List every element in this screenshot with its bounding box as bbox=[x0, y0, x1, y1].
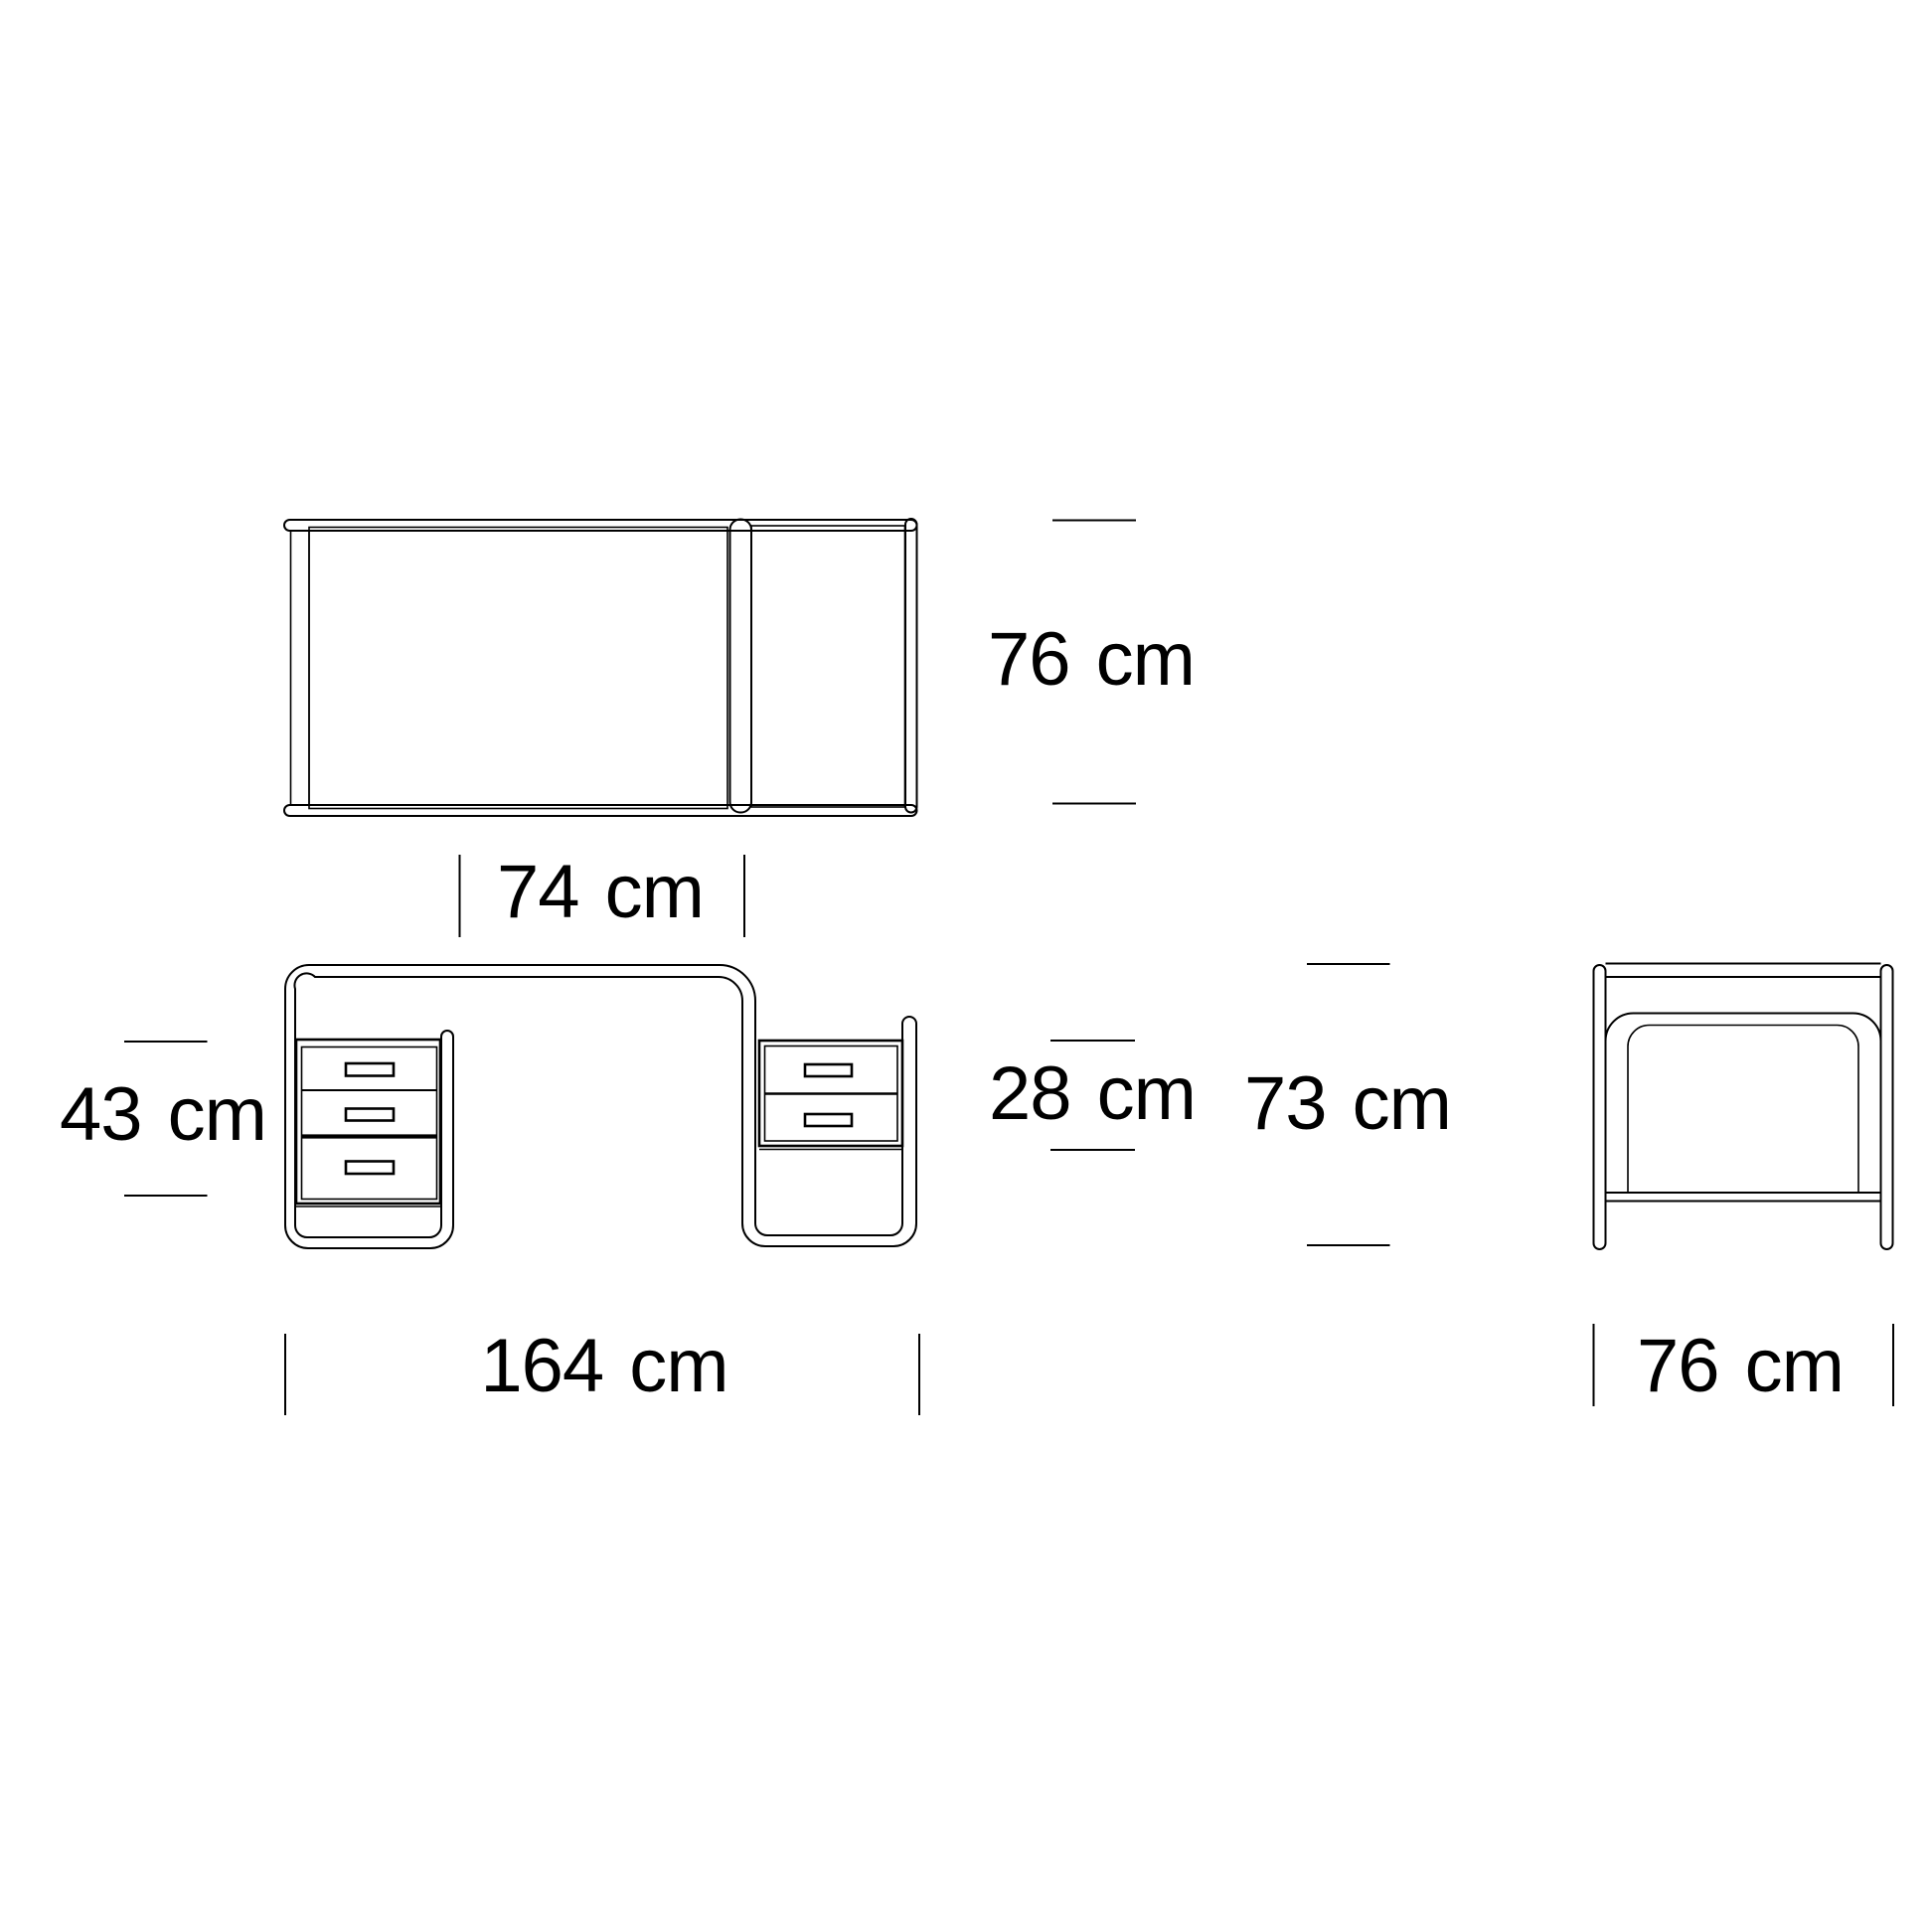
left-drawer-handle-3 bbox=[346, 1162, 394, 1175]
left-drawer-handle-1 bbox=[346, 1063, 394, 1076]
top-view bbox=[284, 519, 917, 816]
dimension-label-overall-height: 73 cm bbox=[1244, 1066, 1451, 1142]
side-view-back-leg bbox=[1881, 965, 1893, 1249]
furniture-dimension-drawing bbox=[0, 0, 1932, 1932]
front-view-right-drawer-unit bbox=[759, 1041, 902, 1150]
front-view-left-drawer-unit bbox=[296, 1040, 440, 1207]
left-drawer-unit-inner-frame bbox=[302, 1047, 437, 1200]
top-view-pedestal-panel bbox=[751, 526, 905, 807]
side-view bbox=[1594, 964, 1893, 1250]
top-view-right-tube bbox=[905, 519, 917, 813]
right-drawer-handle-2 bbox=[805, 1114, 852, 1126]
side-view-bottom-stretcher bbox=[1606, 1193, 1881, 1202]
side-view-front-leg bbox=[1594, 965, 1606, 1249]
dimension-label-top-depth: 76 cm bbox=[988, 622, 1195, 698]
left-drawer-handle-2 bbox=[346, 1109, 394, 1121]
side-view-desktop-edge bbox=[1606, 964, 1881, 978]
dimension-drawing-canvas: 76 cm 74 cm 43 cm 28 cm 73 cm 164 cm 76 … bbox=[0, 0, 1932, 1932]
dimension-label-right-unit-height: 28 cm bbox=[989, 1056, 1196, 1132]
top-view-left-rail bbox=[291, 531, 310, 805]
top-view-main-panel bbox=[309, 528, 727, 809]
side-view-rail-outer bbox=[1606, 1014, 1881, 1046]
dimension-label-side-depth: 76 cm bbox=[1637, 1329, 1844, 1404]
side-view-rail-inner bbox=[1628, 1026, 1858, 1193]
dimension-label-knee-width: 74 cm bbox=[497, 855, 704, 930]
front-view bbox=[285, 965, 916, 1248]
top-view-divider-tube bbox=[730, 520, 752, 813]
dimension-label-left-unit-height: 43 cm bbox=[60, 1077, 266, 1153]
right-drawer-handle-1 bbox=[805, 1064, 852, 1076]
dimension-label-overall-width: 164 cm bbox=[480, 1329, 727, 1404]
